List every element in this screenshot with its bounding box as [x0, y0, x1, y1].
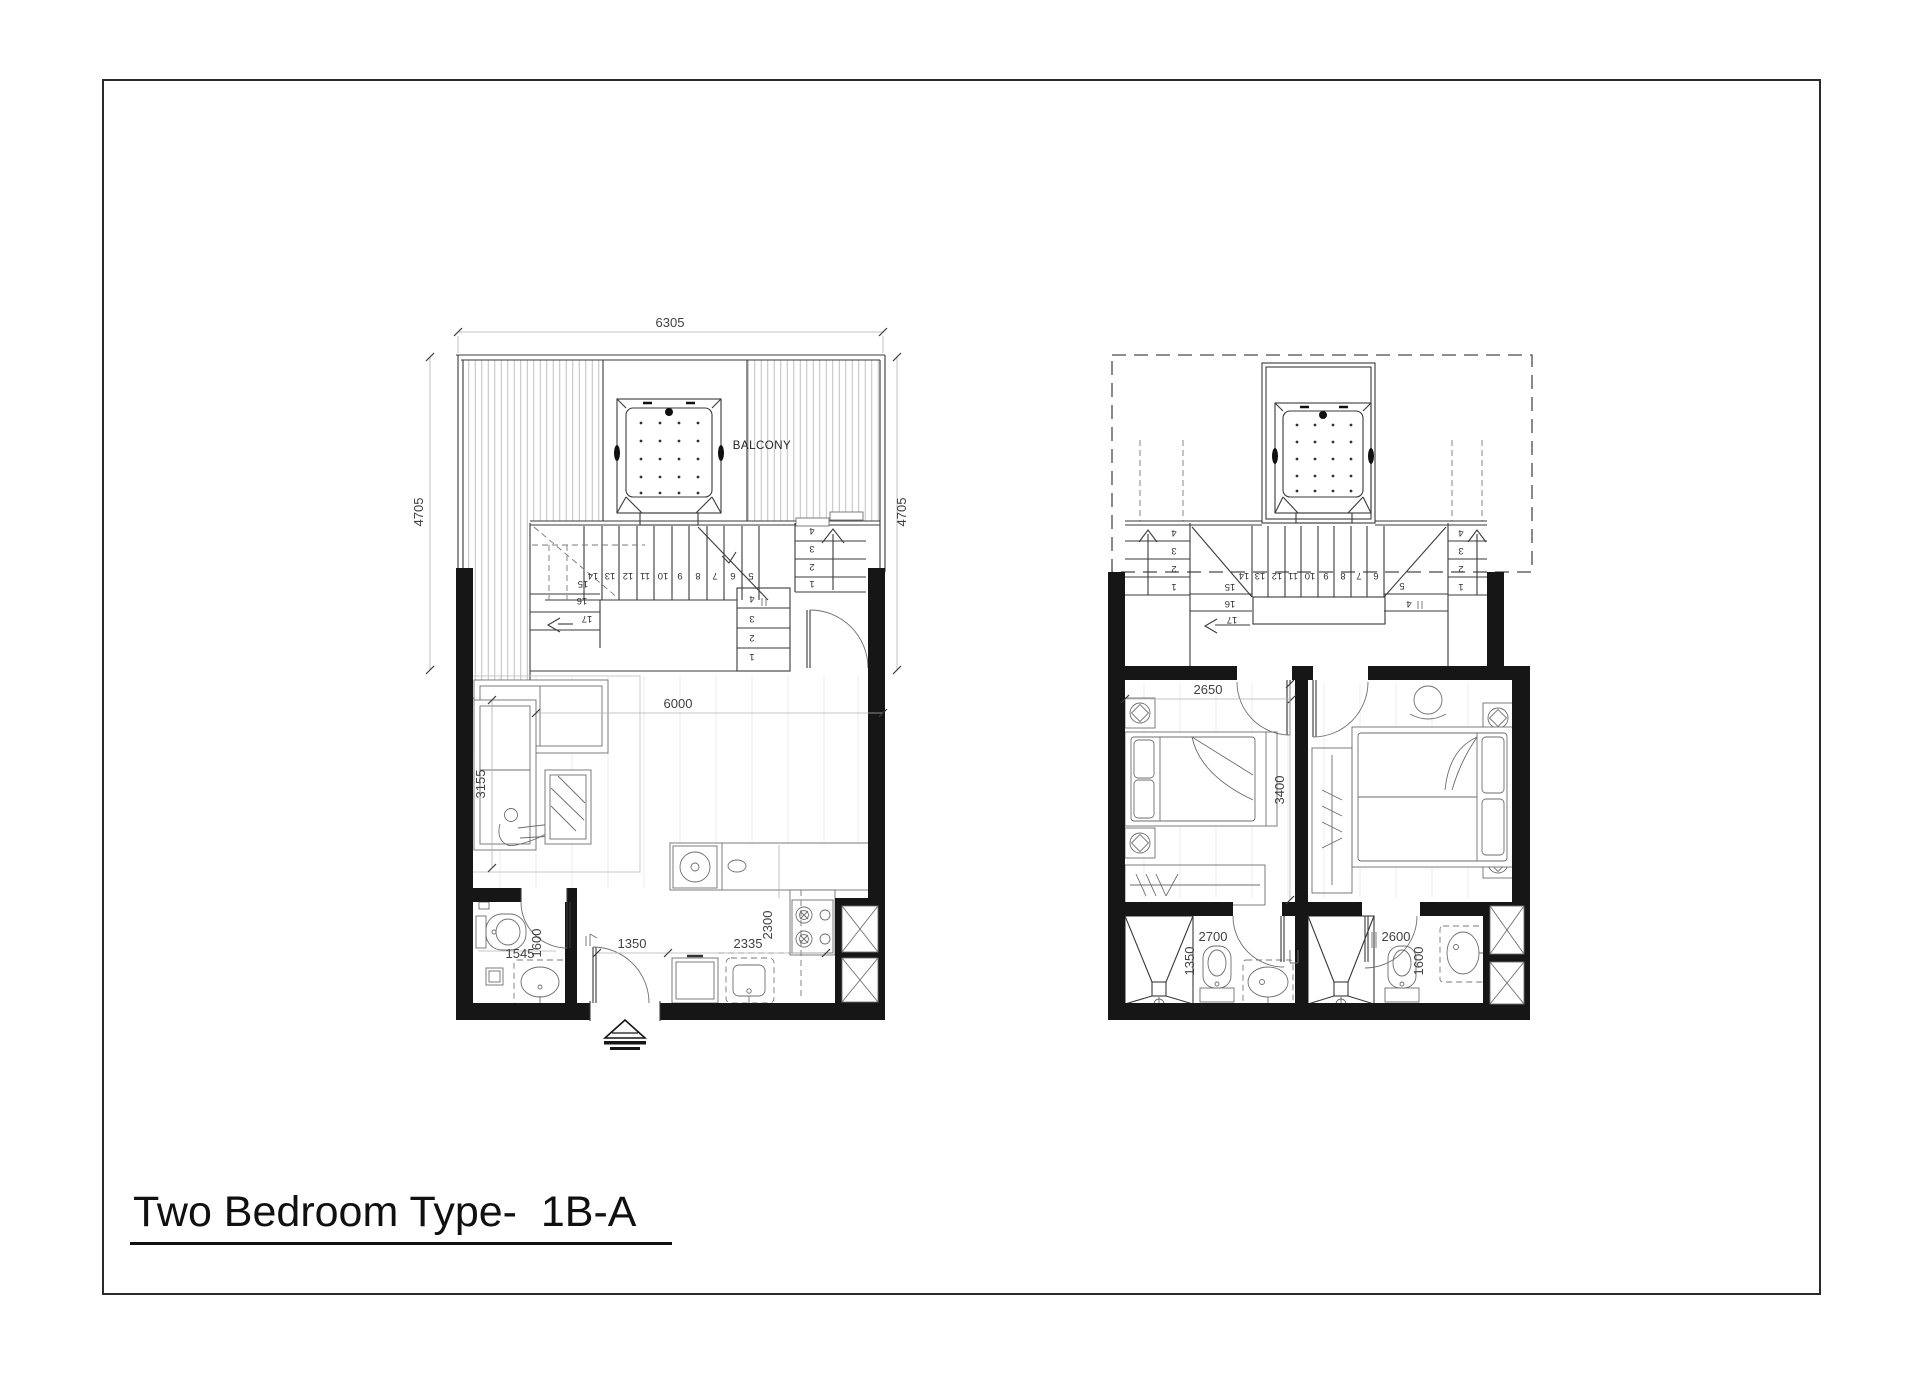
stair-number: 17	[1227, 614, 1238, 625]
floor-plan-svg: BALCONY	[0, 0, 1920, 1375]
stair-number: 4	[809, 525, 814, 536]
dim-living-width: 6000	[664, 696, 693, 711]
dim-entry: 1350	[618, 936, 647, 951]
bedroom-1-door	[1237, 680, 1290, 735]
balcony-label: BALCONY	[733, 440, 791, 452]
stair-number: 5	[1399, 580, 1404, 591]
jacuzzi-jets	[1296, 424, 1353, 493]
stair-number: 13	[1255, 570, 1266, 581]
nightstand	[1125, 698, 1155, 728]
sheet-title: Two Bedroom Type- 1B-A	[133, 1188, 637, 1236]
dim-bedroom-depth: 3400	[1272, 776, 1287, 805]
stair-mid-flight	[737, 588, 790, 671]
stair-number: 12	[1272, 570, 1283, 581]
title-underline	[130, 1242, 672, 1245]
stair-number: 14	[588, 570, 599, 581]
dim-living-depth: 3155	[473, 770, 488, 799]
stool	[1410, 686, 1446, 719]
stair-number: 2	[809, 561, 814, 572]
stair-number: 10	[1305, 570, 1316, 581]
stair-number: 17	[582, 613, 593, 624]
stair-number: 6	[730, 570, 735, 581]
wardrobe-1	[1125, 865, 1265, 905]
void-outline	[1112, 355, 1532, 572]
kitchen-sink	[726, 958, 774, 1003]
stair-number: 3	[809, 543, 814, 554]
stair-number: 12	[623, 570, 634, 581]
bed-1	[1125, 732, 1277, 826]
stair-number: 1	[809, 578, 814, 589]
dim-side-right: 4705	[894, 498, 909, 527]
stair-number: 4	[1406, 598, 1411, 609]
left-plan: BALCONY	[411, 315, 909, 1050]
dim-bath1-width: 2700	[1199, 929, 1228, 944]
kitchen-base-cabinet	[672, 956, 718, 1003]
stair-number: 3	[1171, 545, 1176, 556]
title-block: Two Bedroom Type- 1B-A	[130, 1188, 672, 1245]
stair-number: 6	[1373, 570, 1378, 581]
stair-number: 4	[1171, 527, 1176, 538]
staircase-left-plan: 14 13 12 11 10 9 8 7 6 5 15 16 17 4 3 2 …	[530, 523, 868, 671]
stair-door	[807, 610, 868, 668]
coffee-table	[545, 770, 591, 844]
right-plan: 14 13 12 11 10 9 8 7 6 5 4 15 16 17 4 3 …	[1108, 355, 1532, 1020]
balcony-deck	[466, 358, 880, 697]
stair-number: 4	[749, 593, 754, 604]
entry-arrow	[604, 1020, 646, 1050]
balcony-door-panel	[830, 512, 863, 520]
bed-2	[1352, 727, 1513, 867]
stair-number: 11	[640, 570, 650, 581]
right-corridor-flight	[1448, 530, 1487, 595]
stair-number: 9	[1323, 570, 1328, 581]
kitchen-counter	[670, 843, 883, 890]
stair-landing	[1253, 597, 1385, 624]
stair-number: 7	[1356, 570, 1361, 581]
stair-number: 13	[605, 570, 616, 581]
stair-number: 7	[712, 570, 717, 581]
stair-number: 3	[1458, 545, 1463, 556]
dim-kitchen-depth: 2300	[760, 911, 775, 940]
drawing-sheet: BALCONY	[0, 0, 1920, 1375]
stair-number: 16	[1225, 598, 1236, 609]
stair-number: 1	[749, 651, 754, 662]
living-room	[468, 676, 640, 872]
left-corridor-flight	[1125, 530, 1190, 595]
dim-bath2-width: 2600	[1382, 929, 1411, 944]
dim-side-left: 4705	[411, 498, 426, 527]
dim-bath2-depth: 1600	[1411, 947, 1426, 976]
bedroom-2	[1312, 686, 1513, 893]
dim-bath1-depth: 1350	[1182, 947, 1197, 976]
dim-bedroom-width: 2650	[1194, 682, 1223, 697]
stair-number: 15	[578, 578, 589, 589]
stair-number: 5	[748, 570, 753, 581]
stair-number: 2	[749, 632, 754, 643]
stair-number: 14	[1239, 570, 1250, 581]
stair-number: 1	[1458, 581, 1463, 592]
bedroom-1	[1125, 698, 1277, 905]
stair-number: 2	[1458, 563, 1463, 574]
stair-entry-flight	[795, 523, 866, 592]
stair-treads	[545, 526, 759, 600]
stair-number: 10	[658, 570, 669, 581]
stair-number: 16	[577, 595, 588, 606]
jacuzzi-right	[1262, 363, 1375, 523]
nightstand	[1125, 828, 1155, 858]
dim-kitchen-run: 2335	[734, 936, 763, 951]
stair-dashed-extension	[1140, 440, 1482, 521]
page-frame	[103, 80, 1820, 1294]
dim-overall-width: 6305	[656, 315, 685, 330]
stair-number: 4	[1458, 527, 1463, 538]
stair-number: 2	[1171, 563, 1176, 574]
stair-number: 9	[677, 570, 682, 581]
stair-number: 1	[1171, 581, 1176, 592]
wardrobe-2	[1312, 748, 1352, 893]
stair-number: 11	[1288, 570, 1298, 581]
stair-number: 15	[1225, 581, 1236, 592]
balcony-door-panel	[796, 518, 829, 526]
staircase-right-plan: 14 13 12 11 10 9 8 7 6 5 4 15 16 17 4 3 …	[1125, 521, 1487, 666]
stair-number: 8	[695, 570, 700, 581]
dim-bath-depth: 1600	[529, 929, 544, 958]
stair-number: 8	[1340, 570, 1345, 581]
stair-number: 3	[749, 613, 754, 624]
